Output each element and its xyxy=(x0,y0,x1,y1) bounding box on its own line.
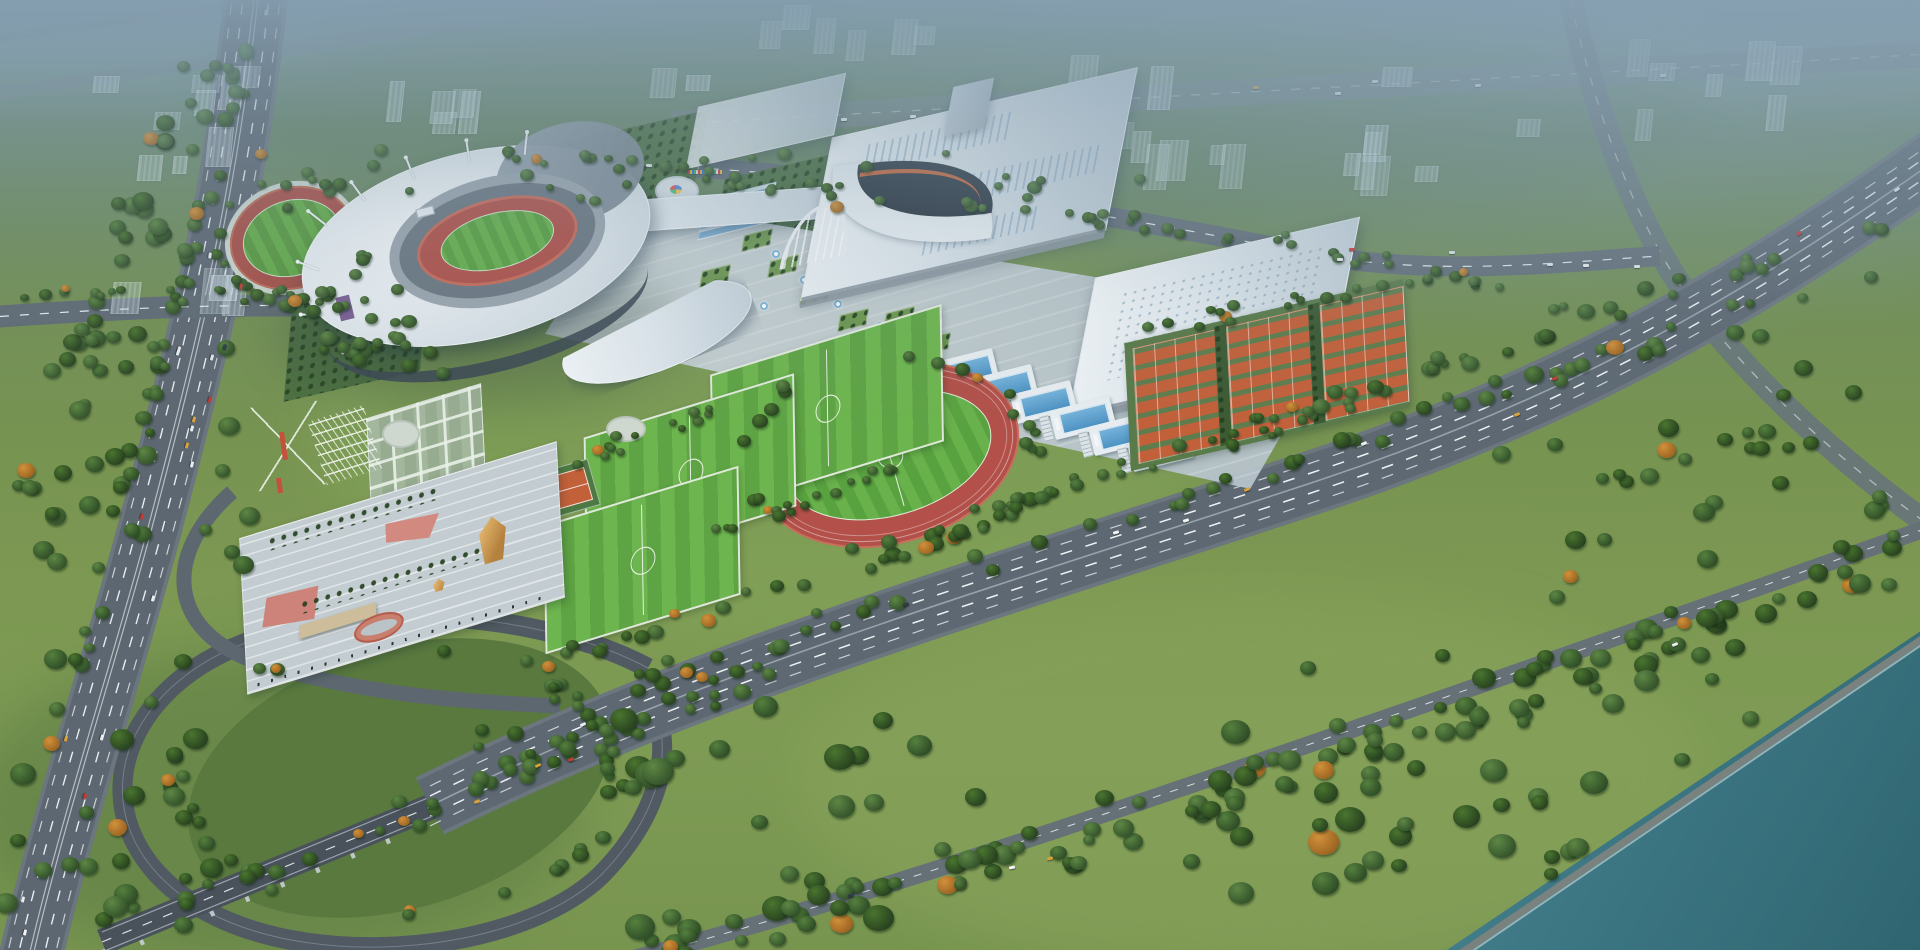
car xyxy=(1253,86,1259,89)
car xyxy=(910,115,916,118)
car xyxy=(1113,530,1120,535)
car xyxy=(83,793,88,800)
car xyxy=(208,396,213,403)
car xyxy=(1183,518,1190,523)
car xyxy=(192,416,197,423)
car xyxy=(23,929,27,936)
car xyxy=(21,896,25,903)
traffic-layer xyxy=(0,0,1920,950)
car xyxy=(1449,251,1455,254)
car xyxy=(903,602,910,607)
car xyxy=(185,442,190,449)
car xyxy=(1672,642,1679,647)
aerial-rendering-sports-complex xyxy=(0,0,1920,950)
car xyxy=(1514,412,1521,417)
car xyxy=(1337,258,1343,261)
car xyxy=(646,164,652,167)
car xyxy=(848,893,855,897)
car xyxy=(568,757,575,762)
car xyxy=(535,763,542,768)
car xyxy=(1361,441,1368,446)
car xyxy=(264,9,268,15)
car xyxy=(1552,376,1559,381)
car xyxy=(140,513,145,520)
car xyxy=(1547,263,1553,266)
car xyxy=(151,595,156,602)
car xyxy=(1796,231,1803,237)
car xyxy=(1894,187,1901,193)
car xyxy=(1349,248,1355,251)
car xyxy=(1047,856,1054,860)
car xyxy=(1583,264,1589,267)
car xyxy=(239,283,243,289)
car xyxy=(1244,487,1251,492)
car xyxy=(1335,92,1341,95)
car xyxy=(474,799,481,804)
car xyxy=(208,252,212,258)
car xyxy=(1372,80,1378,83)
car xyxy=(100,734,105,741)
car xyxy=(190,461,195,468)
car xyxy=(210,354,215,361)
car xyxy=(64,735,69,742)
car xyxy=(190,425,195,432)
car xyxy=(580,722,587,727)
car xyxy=(1634,265,1640,268)
car xyxy=(1009,865,1016,869)
car xyxy=(1475,84,1481,87)
car xyxy=(841,118,847,121)
car xyxy=(1660,74,1666,77)
car xyxy=(223,344,228,351)
